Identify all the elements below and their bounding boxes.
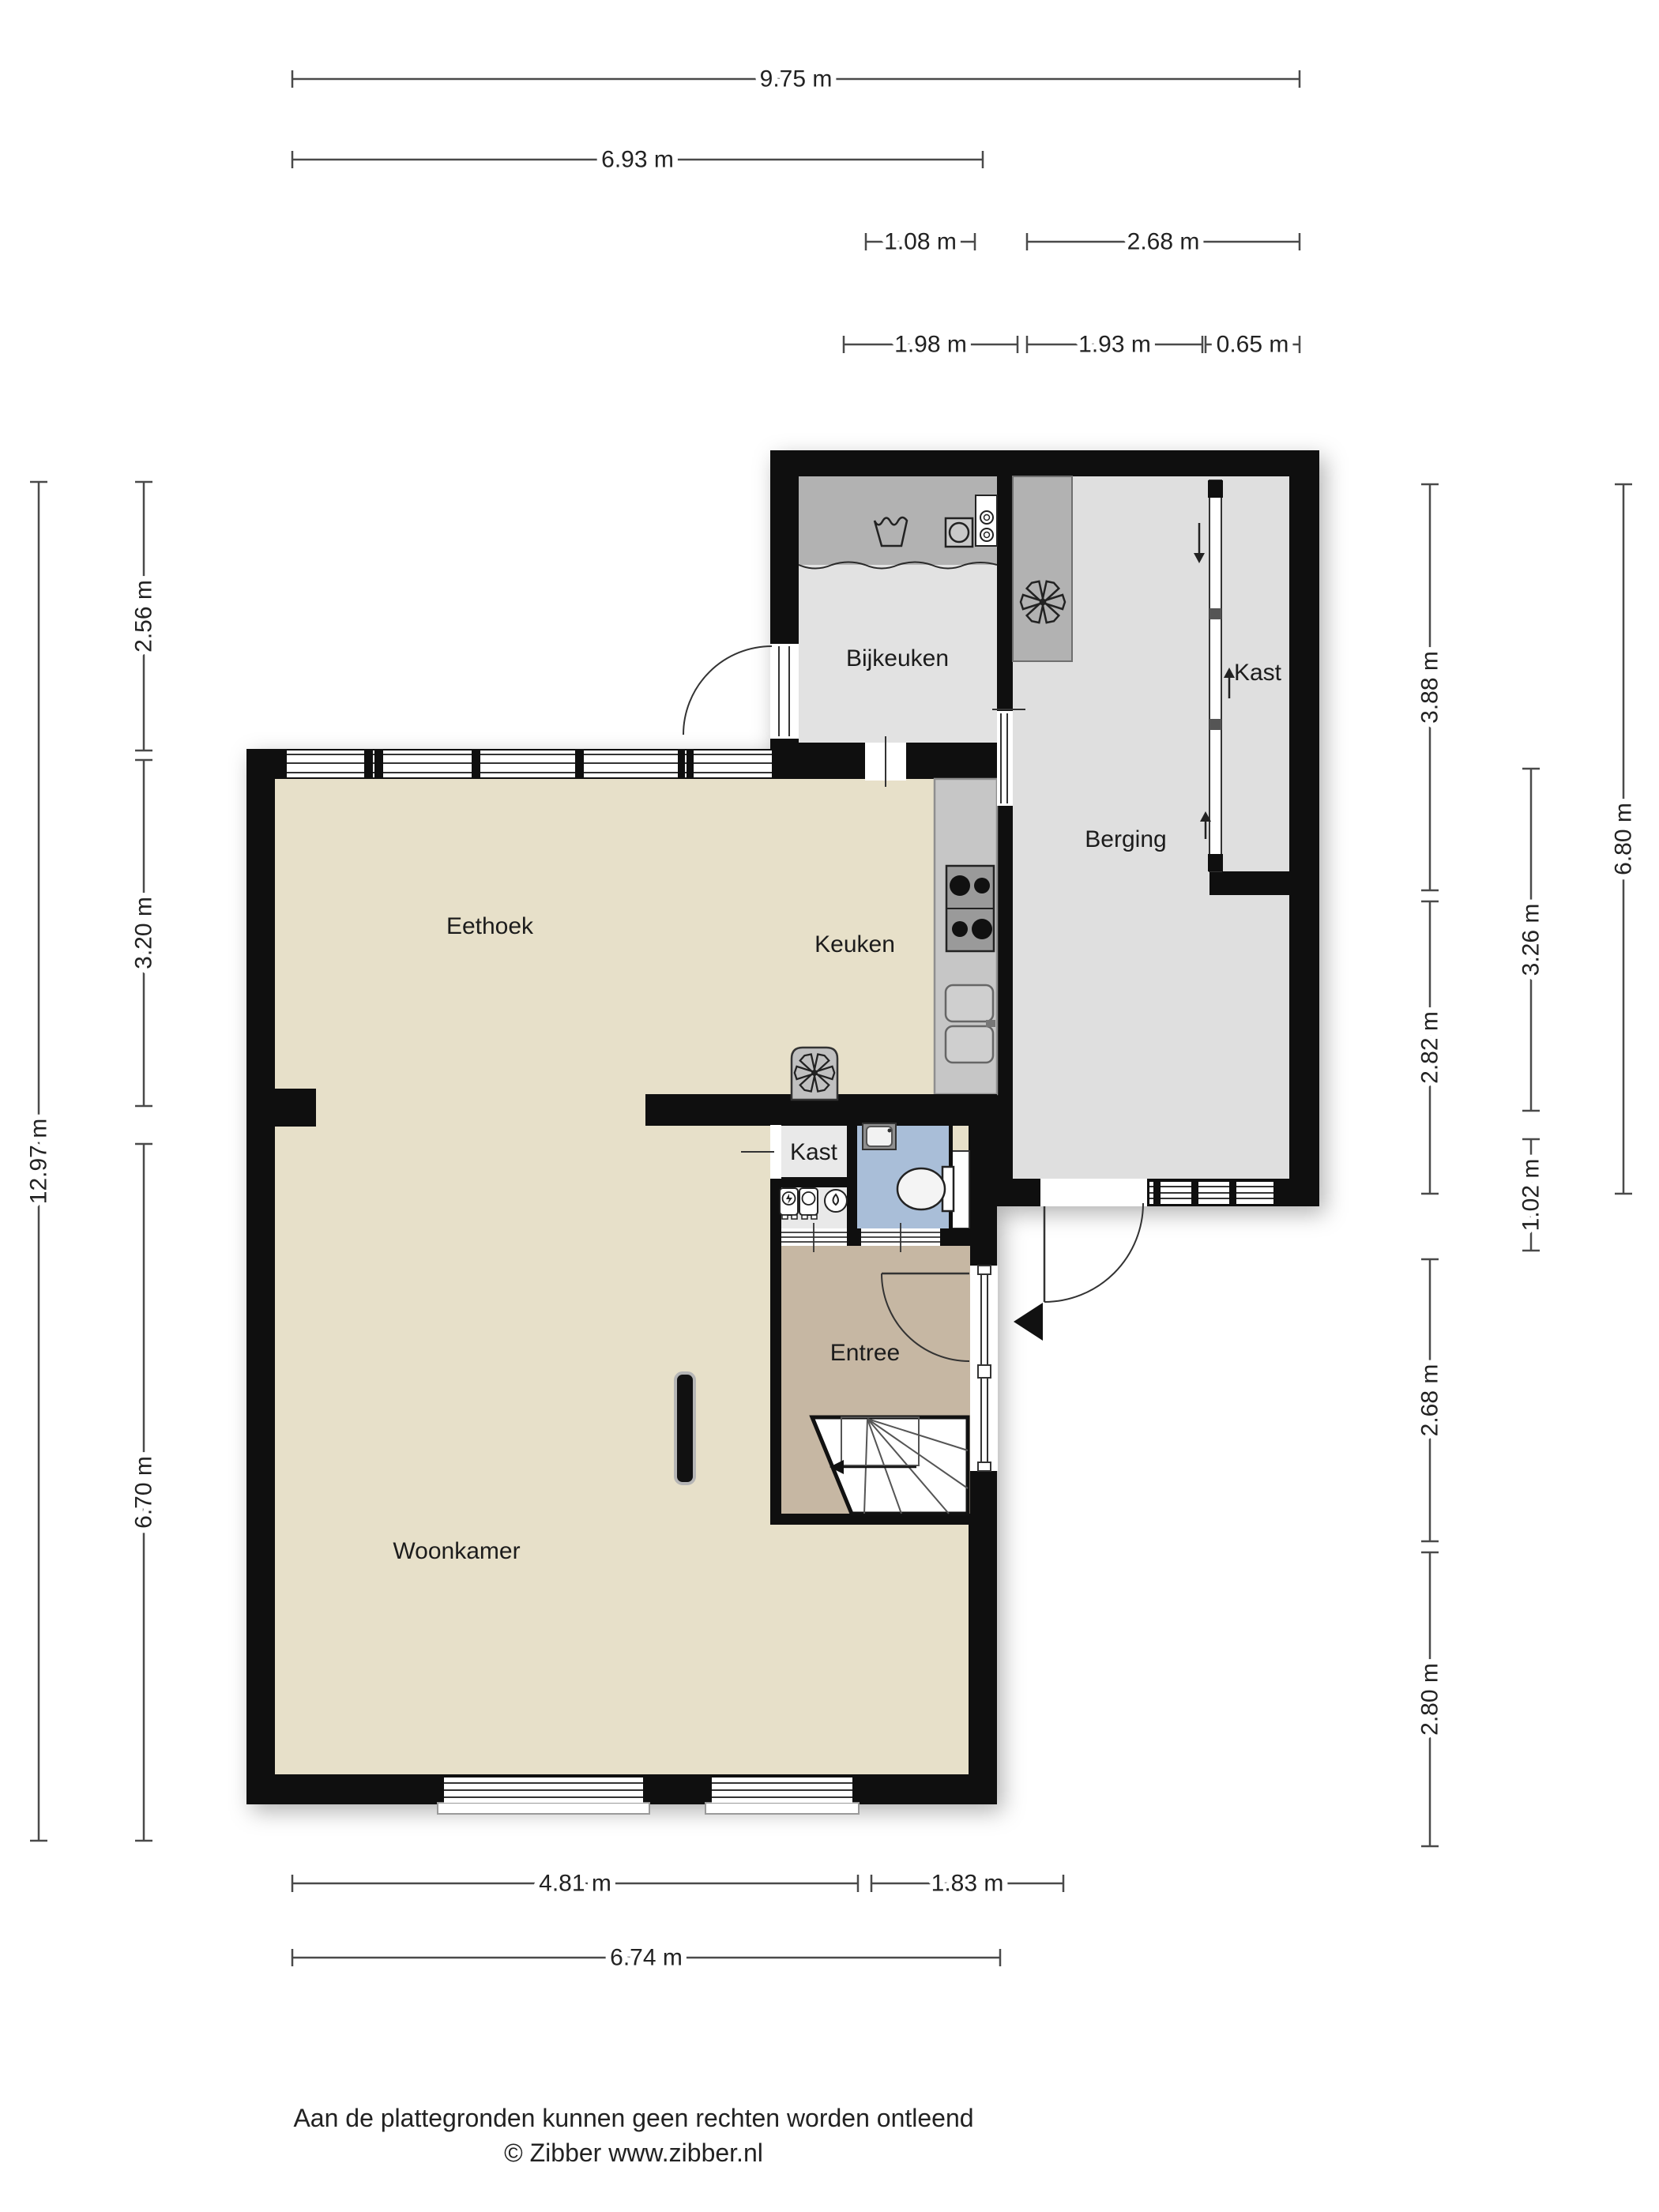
wall-kast-bottom bbox=[1209, 871, 1289, 895]
wall-stub-left bbox=[275, 1089, 316, 1127]
wall-closet-meter bbox=[781, 1177, 847, 1187]
footer: Aan de plattegronden kunnen geen rechten… bbox=[293, 2104, 973, 2167]
dim-label: 0.65 m bbox=[1217, 332, 1289, 358]
dim-label: 2.68 m bbox=[1127, 229, 1200, 255]
dim-label: 4.81 m bbox=[539, 1871, 611, 1897]
dim-label: 12.97 m bbox=[26, 1119, 52, 1204]
room-label-eethoek: Eethoek bbox=[446, 913, 534, 939]
dim-label: 1.02 m bbox=[1518, 1159, 1544, 1232]
dim-label: 1.93 m bbox=[1078, 332, 1151, 358]
room-label-berging: Berging bbox=[1085, 826, 1166, 852]
dim-label: 6.74 m bbox=[610, 1945, 683, 1971]
room-label-kast-upper: Kast bbox=[1234, 660, 1282, 686]
dim-label: 1.98 m bbox=[894, 332, 967, 358]
room-label-kast-mid: Kast bbox=[790, 1139, 838, 1165]
room-label-keuken: Keuken bbox=[814, 931, 895, 957]
room-label-bijkeuken: Bijkeuken bbox=[846, 645, 949, 671]
dim-label: 2.82 m bbox=[1417, 1011, 1443, 1084]
water-meter-icon bbox=[825, 1190, 847, 1212]
dim-label: 6.70 m bbox=[131, 1456, 157, 1529]
entrance-arrow-icon bbox=[1014, 1303, 1043, 1341]
dim-label: 9.75 m bbox=[760, 66, 833, 92]
floorplan-svg: Bijkeuken Berging Kast Eethoek Keuken Ka… bbox=[0, 0, 1659, 2212]
boiler-icon bbox=[976, 495, 997, 546]
hand-basin-icon bbox=[863, 1123, 896, 1149]
dim-label: 3.26 m bbox=[1518, 904, 1544, 976]
toilet-niche bbox=[952, 1151, 969, 1228]
door-arc-berging bbox=[1044, 1203, 1143, 1302]
dim-label: 6.93 m bbox=[601, 147, 674, 173]
door-keuken-berging bbox=[997, 711, 1013, 806]
footer-disclaimer: Aan de plattegronden kunnen geen rechten… bbox=[293, 2104, 973, 2132]
room-label-entree: Entree bbox=[830, 1340, 900, 1366]
door-arc-bijkeuken bbox=[683, 646, 772, 735]
stove-icon bbox=[946, 866, 994, 951]
dim-label: 2.56 m bbox=[131, 580, 157, 653]
room-label-woonkamer: Woonkamer bbox=[393, 1538, 520, 1564]
door-berging bbox=[1040, 1179, 1147, 1206]
toilet-icon bbox=[897, 1167, 954, 1211]
dim-label: 1.83 m bbox=[931, 1871, 1004, 1897]
floorplan-page: Bijkeuken Berging Kast Eethoek Keuken Ka… bbox=[0, 0, 1659, 2212]
fireplace bbox=[675, 1373, 694, 1484]
dim-label: 3.20 m bbox=[131, 897, 157, 969]
washing-machine-icon bbox=[946, 518, 972, 547]
hood-unit bbox=[792, 1048, 837, 1100]
dim-label: 2.68 m bbox=[1417, 1364, 1443, 1437]
sliding-door bbox=[1209, 480, 1221, 871]
dim-label: 1.08 m bbox=[884, 229, 957, 255]
wall-closet-toilet bbox=[847, 1123, 857, 1228]
fan-closet bbox=[1013, 476, 1072, 661]
wall-entree-left bbox=[770, 1123, 781, 1525]
dim-label: 6.80 m bbox=[1611, 803, 1637, 875]
footer-copyright: © Zibber www.zibber.nl bbox=[504, 2139, 763, 2167]
door-bijkeuken bbox=[770, 644, 799, 739]
dim-label: 2.80 m bbox=[1417, 1663, 1443, 1736]
dim-label: 3.88 m bbox=[1417, 651, 1443, 724]
